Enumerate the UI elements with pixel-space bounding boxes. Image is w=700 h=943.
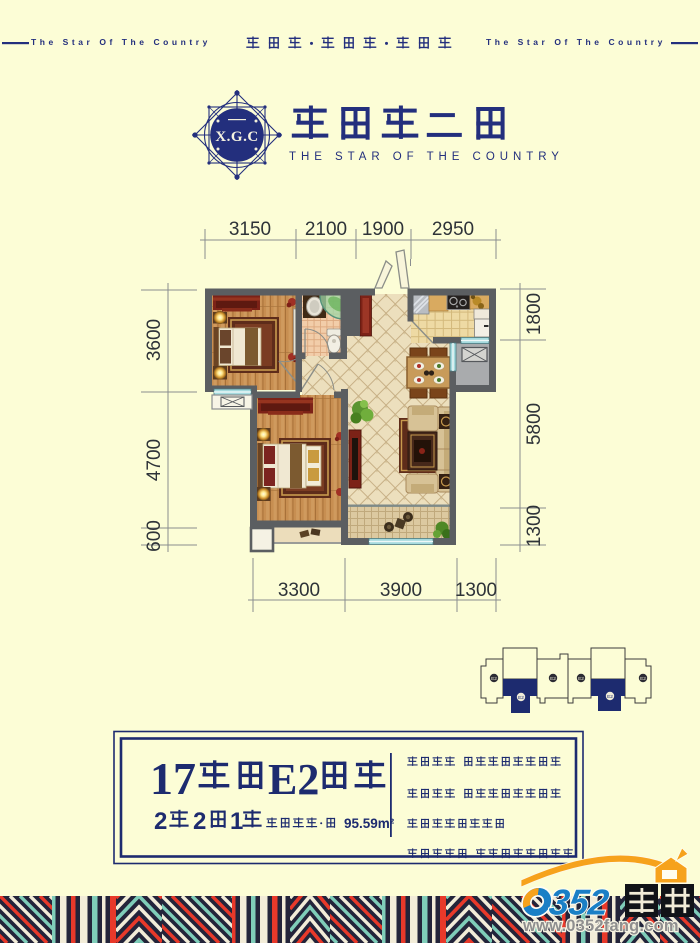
svg-text:1300: 1300 [455, 580, 497, 601]
svg-text:2: 2 [154, 808, 167, 835]
svg-text:3900: 3900 [380, 580, 422, 601]
svg-text:E2: E2 [268, 755, 319, 804]
svg-text:17: 17 [150, 753, 196, 804]
svg-text:2950: 2950 [432, 219, 474, 240]
svg-text:E2: E2 [518, 695, 524, 701]
svg-text:3150: 3150 [229, 219, 271, 240]
svg-text:E2: E2 [578, 676, 584, 682]
svg-text:E2: E2 [607, 694, 613, 700]
svg-text:1800: 1800 [524, 293, 545, 335]
svg-text:X.G.C: X.G.C [215, 129, 258, 145]
svg-text:E2: E2 [550, 676, 556, 682]
svg-text:5800: 5800 [524, 403, 545, 445]
svg-text:E2: E2 [640, 676, 646, 682]
svg-text:2: 2 [193, 808, 206, 835]
svg-text:www.0352fang.com: www.0352fang.com [522, 917, 679, 935]
svg-text:600: 600 [144, 520, 165, 552]
svg-text:1300: 1300 [524, 505, 545, 547]
svg-text:E2: E2 [491, 676, 497, 682]
svg-text:3300: 3300 [278, 580, 320, 601]
svg-text:95.59m²: 95.59m² [344, 816, 395, 831]
svg-text:THE STAR OF THE COUNTRY: THE STAR OF THE COUNTRY [289, 151, 564, 163]
svg-text:1900: 1900 [362, 219, 404, 240]
svg-text:3600: 3600 [144, 319, 165, 361]
svg-text:2100: 2100 [305, 219, 347, 240]
svg-text:1: 1 [230, 808, 243, 835]
svg-text:4700: 4700 [144, 439, 165, 481]
